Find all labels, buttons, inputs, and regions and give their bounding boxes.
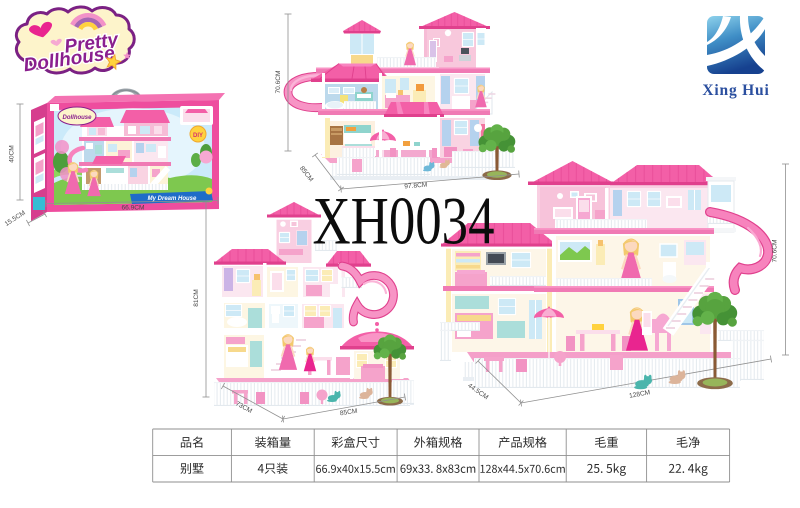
svg-text:70.6CM: 70.6CM — [275, 70, 282, 93]
svg-text:Dollhouse: Dollhouse — [62, 115, 92, 121]
svg-text:XH0034: XH0034 — [313, 183, 495, 259]
svg-text:DIY: DIY — [193, 133, 203, 139]
svg-text:70.6CM: 70.6CM — [772, 239, 779, 262]
svg-text:81CM: 81CM — [193, 289, 200, 307]
svg-text:66.9CM: 66.9CM — [121, 205, 144, 212]
svg-text:40CM: 40CM — [9, 145, 16, 163]
svg-text:Xing Hui: Xing Hui — [702, 82, 769, 99]
